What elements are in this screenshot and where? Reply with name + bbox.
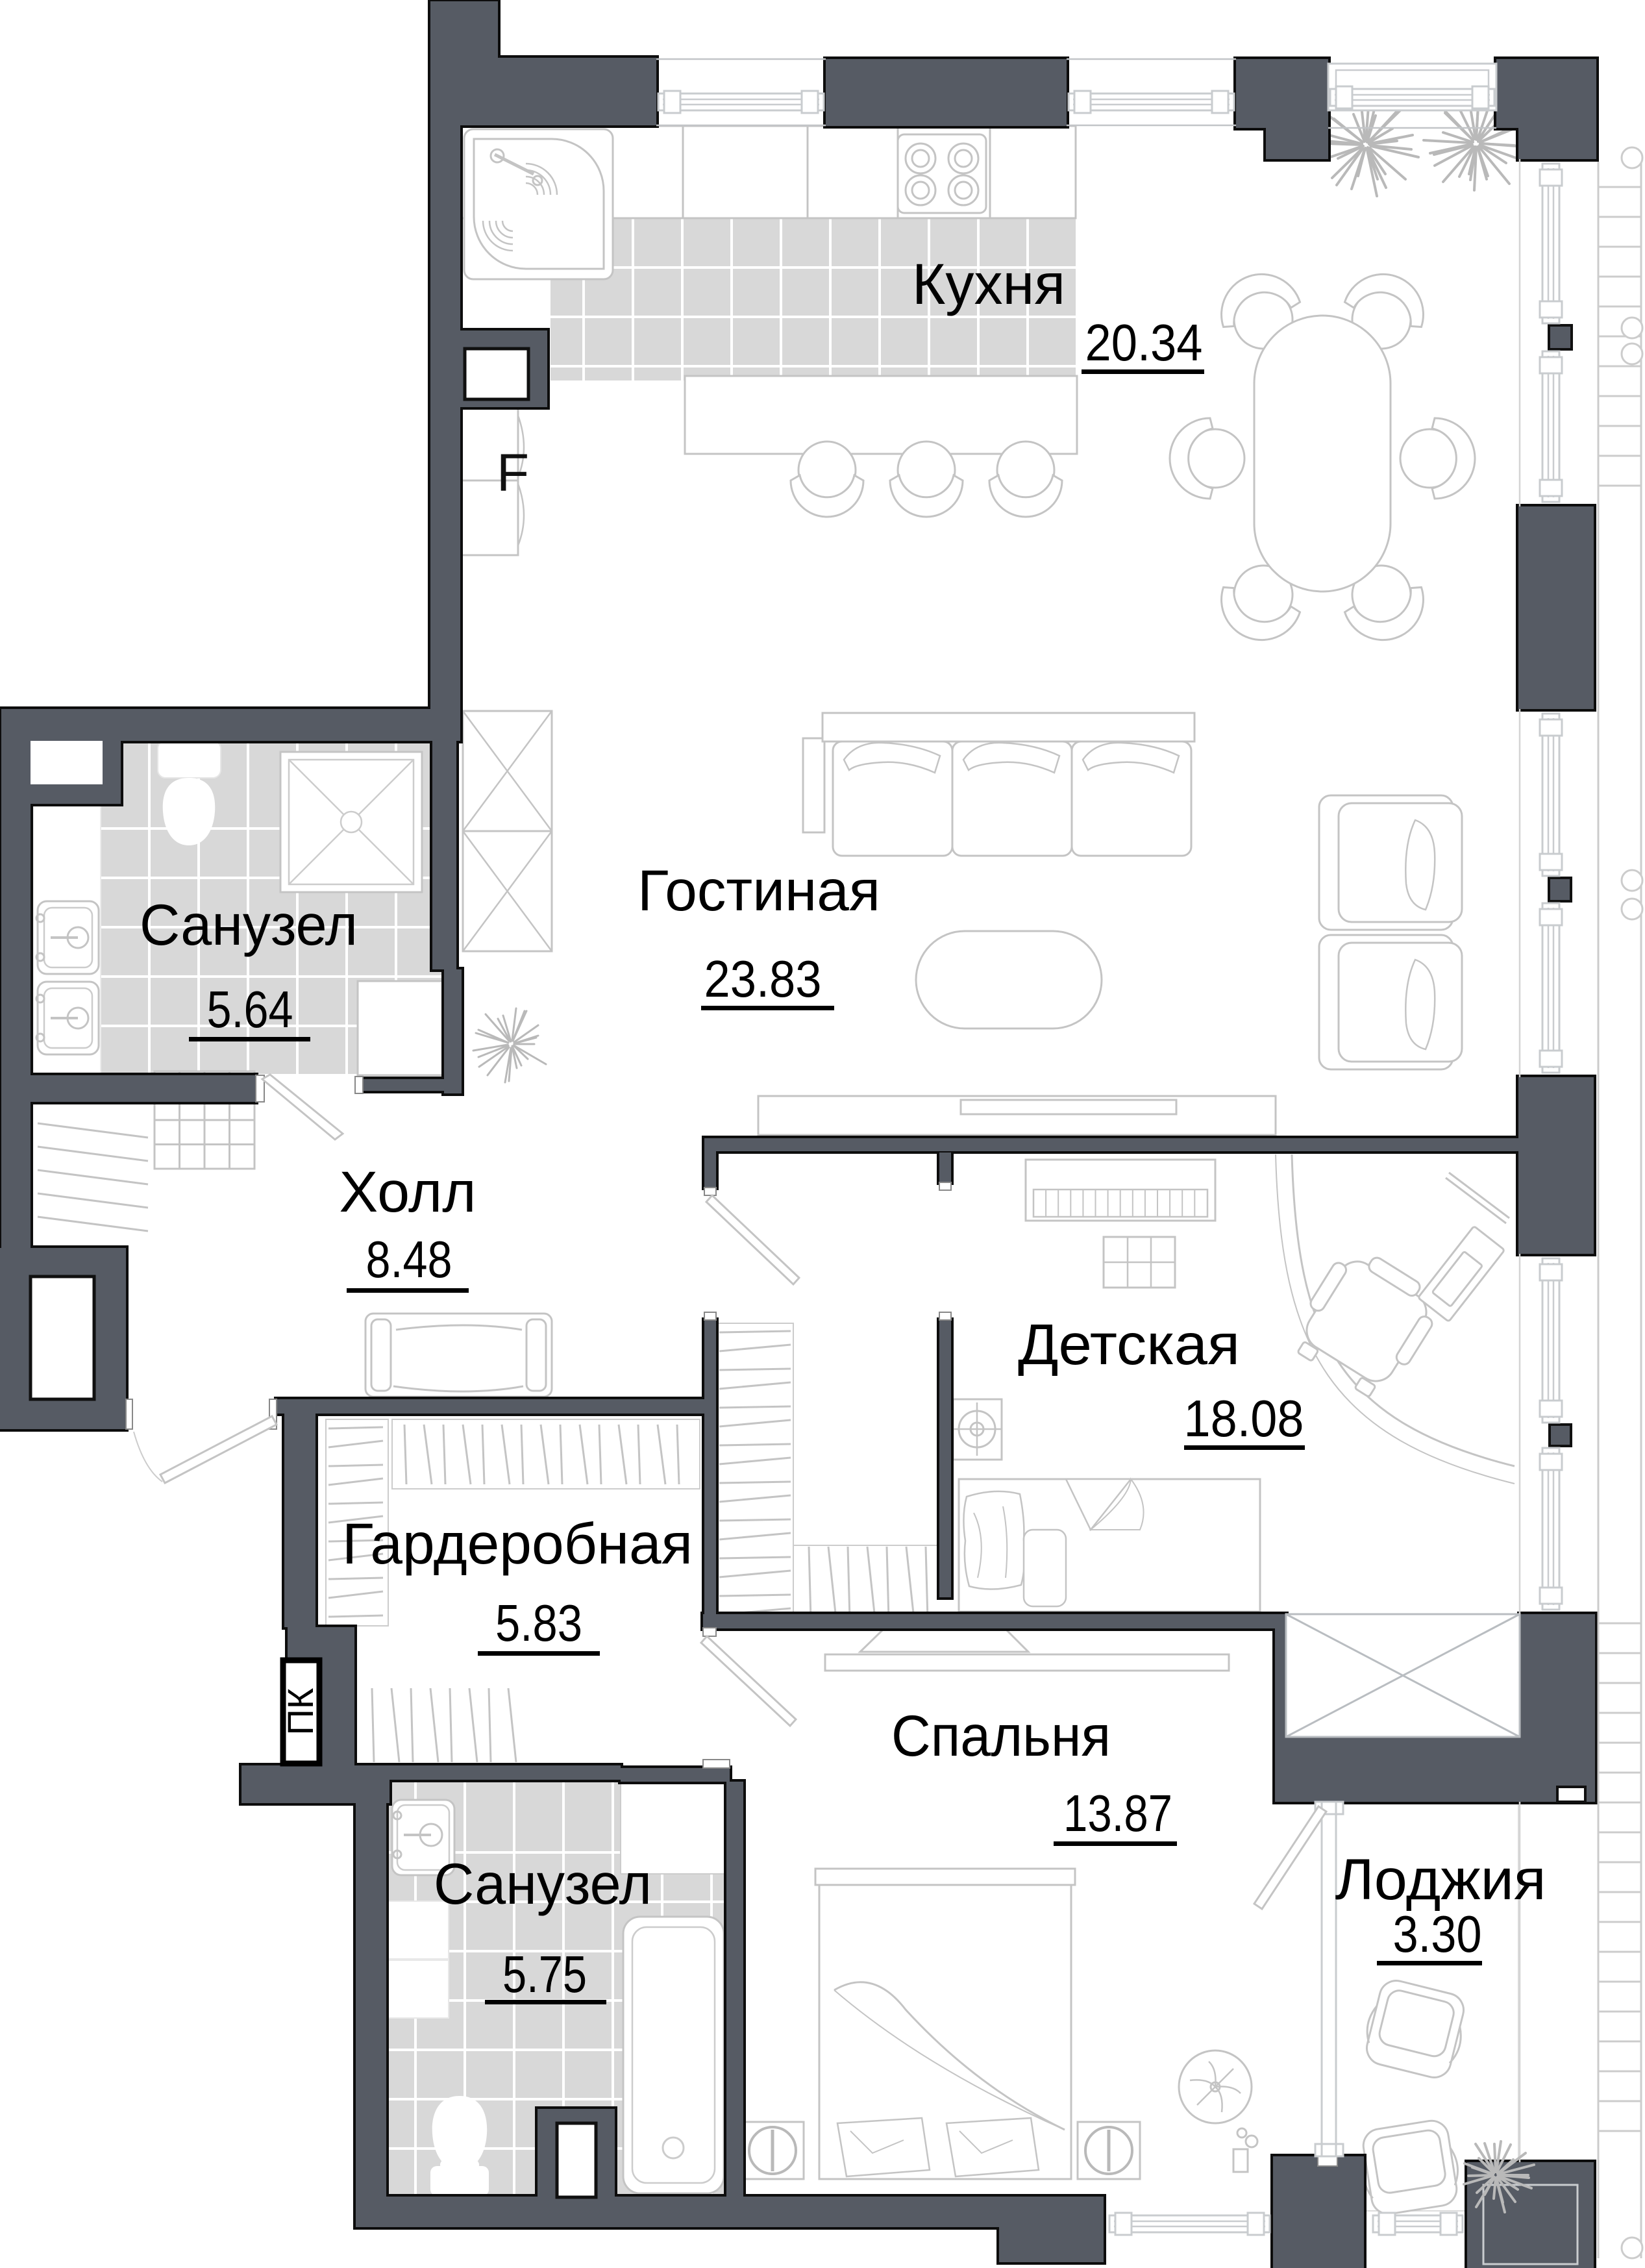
svg-text:18.08: 18.08 <box>1184 1389 1304 1447</box>
svg-text:13.87: 13.87 <box>1063 1784 1172 1842</box>
svg-text:Холл: Холл <box>340 1159 476 1224</box>
svg-text:ПК: ПК <box>280 1688 321 1735</box>
svg-text:5.83: 5.83 <box>495 1594 582 1652</box>
svg-text:3.30: 3.30 <box>1393 1905 1482 1963</box>
svg-text:8.48: 8.48 <box>366 1230 452 1288</box>
svg-text:Спальня: Спальня <box>891 1703 1111 1768</box>
svg-text:Лоджия: Лоджия <box>1335 1847 1546 1912</box>
svg-text:5.75: 5.75 <box>502 1945 587 2003</box>
svg-text:23.83: 23.83 <box>704 950 822 1008</box>
svg-text:Санузел: Санузел <box>434 1851 652 1916</box>
svg-text:Санузел: Санузел <box>140 892 358 957</box>
svg-text:5.64: 5.64 <box>207 980 293 1038</box>
svg-text:20.34: 20.34 <box>1085 314 1203 371</box>
svg-text:Детская: Детская <box>1018 1312 1240 1377</box>
svg-text:F: F <box>497 443 529 503</box>
svg-text:Кухня: Кухня <box>912 251 1065 316</box>
svg-text:Гардеробная: Гардеробная <box>342 1511 693 1576</box>
svg-text:Гостиная: Гостиная <box>637 858 880 923</box>
